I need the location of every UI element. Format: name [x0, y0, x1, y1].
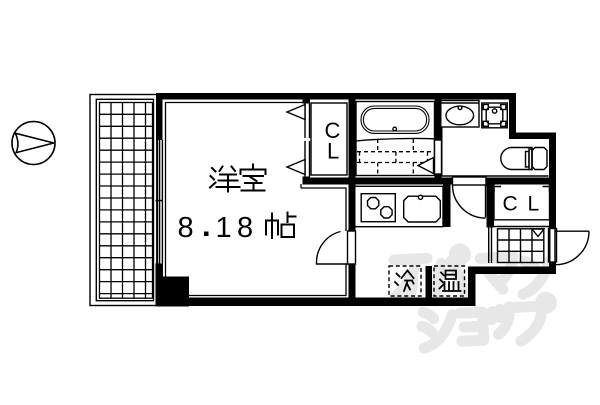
svg-text:C: C: [503, 193, 518, 216]
svg-text:1: 1: [216, 212, 232, 244]
svg-text:L: L: [327, 139, 339, 164]
svg-text:8: 8: [237, 212, 253, 244]
svg-text:8: 8: [178, 212, 194, 244]
svg-text:L: L: [528, 193, 540, 216]
